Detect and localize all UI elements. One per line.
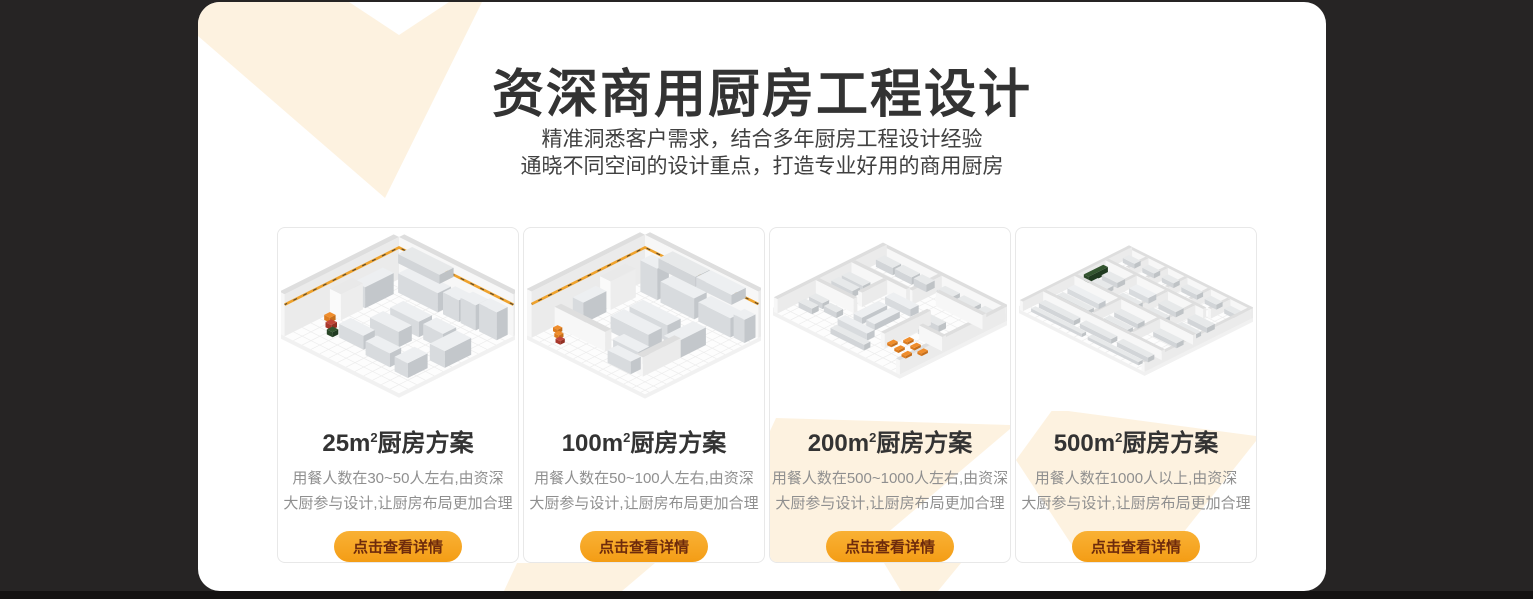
- ribbon-tail-left: [504, 563, 655, 591]
- page-subtitle: 精准洞悉客户需求，结合多年厨房工程设计经验 通晓不同空间的设计重点，打造专业好用…: [198, 126, 1326, 180]
- view-details-button[interactable]: 点击查看详情: [1072, 531, 1200, 562]
- view-details-button[interactable]: 点击查看详情: [580, 531, 708, 562]
- page-subtitle-line2: 通晓不同空间的设计重点，打造专业好用的商用厨房: [198, 153, 1326, 180]
- card-description: 用餐人数在500~1000人左右,由资深 大厨参与设计,让厨房布局更加合理: [770, 466, 1010, 516]
- card-description: 用餐人数在30~50人左右,由资深 大厨参与设计,让厨房布局更加合理: [278, 466, 518, 516]
- page-background: { "theme": { "page_bg": "#262424", "bott…: [0, 0, 1533, 599]
- view-details-button[interactable]: 点击查看详情: [334, 531, 462, 562]
- card-title: 200m2厨房方案: [770, 423, 1010, 458]
- view-details-button[interactable]: 点击查看详情: [826, 531, 954, 562]
- solution-card-100sqm: 100m2厨房方案 用餐人数在50~100人左右,由资深 大厨参与设计,让厨房布…: [523, 227, 765, 563]
- card-title: 25m2厨房方案: [278, 423, 518, 458]
- kitchen-render-100sqm: [527, 231, 761, 411]
- card-description: 用餐人数在1000人以上,由资深 大厨参与设计,让厨房布局更加合理: [1016, 466, 1256, 516]
- page-title: 资深商用厨房工程设计: [198, 52, 1326, 127]
- kitchen-render-25sqm: [281, 231, 515, 411]
- page-subtitle-line1: 精准洞悉客户需求，结合多年厨房工程设计经验: [198, 126, 1326, 153]
- ribbon-tail-right: [884, 563, 961, 591]
- kitchen-render-500sqm: [1019, 231, 1253, 411]
- card-title: 500m2厨房方案: [1016, 423, 1256, 458]
- solution-card-200sqm: 200m2厨房方案 用餐人数在500~1000人左右,由资深 大厨参与设计,让厨…: [769, 227, 1011, 563]
- bottom-dark-bar: [0, 591, 1533, 599]
- solution-cards: 25m2厨房方案 用餐人数在30~50人左右,由资深 大厨参与设计,让厨房布局更…: [277, 227, 1257, 563]
- solution-card-25sqm: 25m2厨房方案 用餐人数在30~50人左右,由资深 大厨参与设计,让厨房布局更…: [277, 227, 519, 563]
- card-description: 用餐人数在50~100人左右,由资深 大厨参与设计,让厨房布局更加合理: [524, 466, 764, 516]
- card-title: 100m2厨房方案: [524, 423, 764, 458]
- solution-card-500sqm: 500m2厨房方案 用餐人数在1000人以上,由资深 大厨参与设计,让厨房布局更…: [1015, 227, 1257, 563]
- content-panel: 资深商用厨房工程设计 精准洞悉客户需求，结合多年厨房工程设计经验 通晓不同空间的…: [198, 2, 1326, 591]
- kitchen-render-200sqm: [773, 231, 1007, 411]
